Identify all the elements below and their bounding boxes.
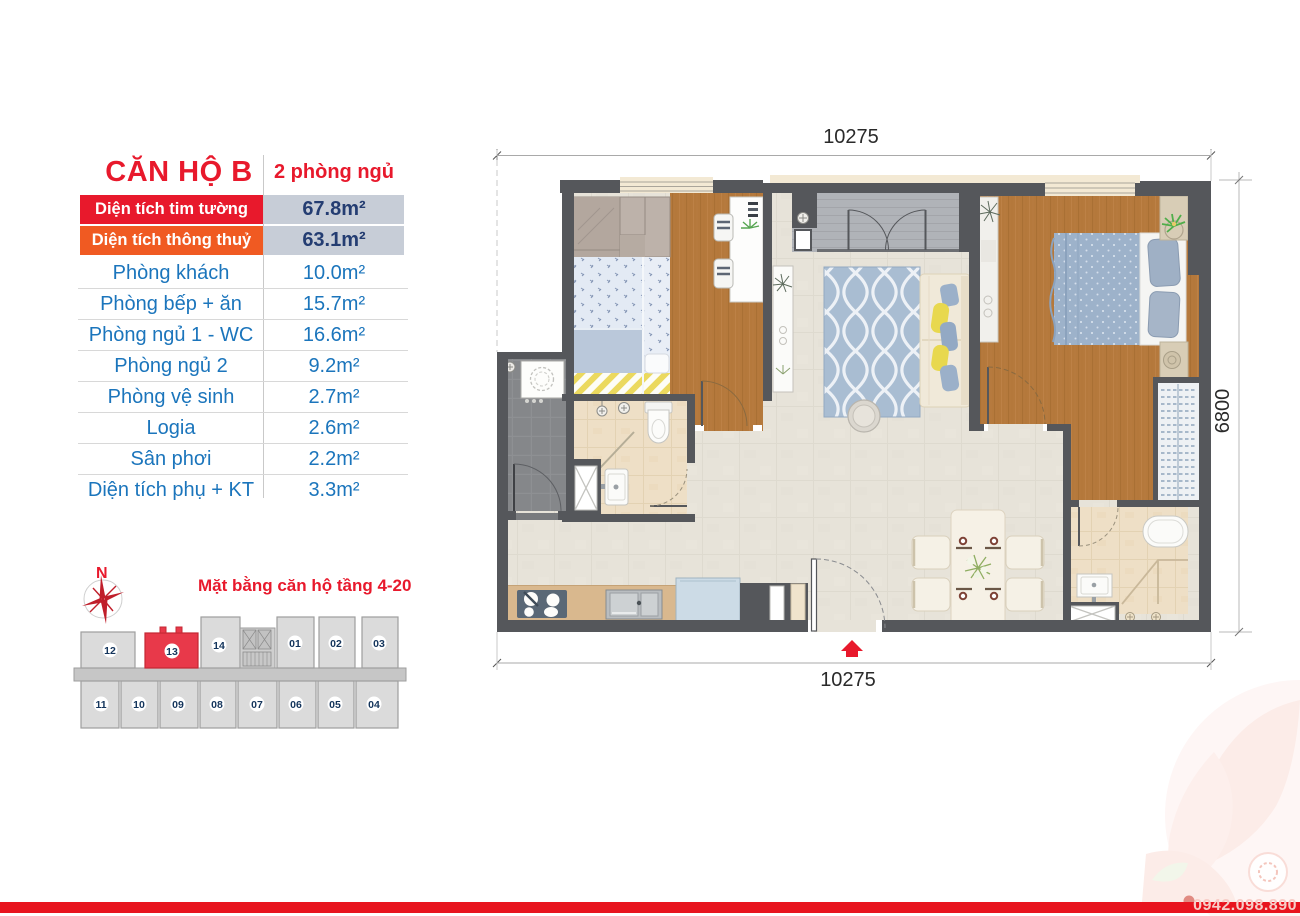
svg-text:6800: 6800 — [1212, 389, 1234, 434]
svg-text:10275: 10275 — [820, 669, 876, 691]
svg-text:10275: 10275 — [823, 126, 879, 148]
